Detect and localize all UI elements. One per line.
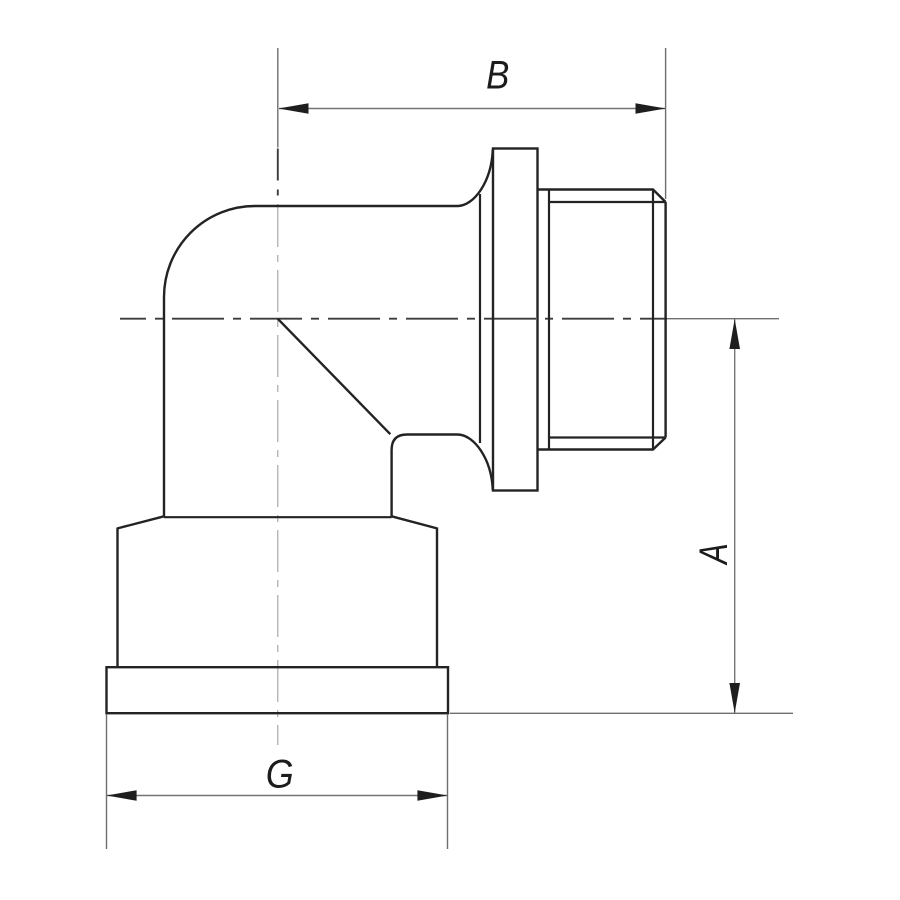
svg-text:A: A [691, 543, 736, 566]
svg-text:G: G [266, 753, 294, 797]
svg-text:B: B [486, 52, 509, 97]
